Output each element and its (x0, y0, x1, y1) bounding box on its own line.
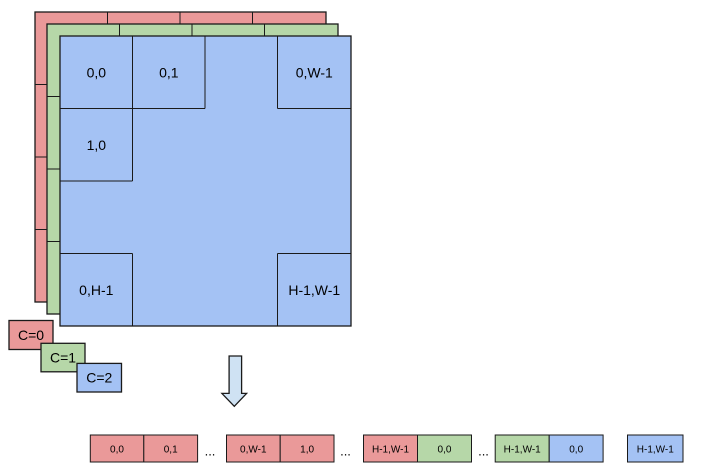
svg-text:0,0: 0,0 (569, 444, 583, 455)
svg-text:1,0: 1,0 (300, 444, 314, 455)
svg-text:0,1: 0,1 (164, 444, 178, 455)
svg-text:1,0: 1,0 (87, 137, 107, 153)
svg-text:H-1,W-1: H-1,W-1 (504, 444, 541, 455)
svg-text:H-1,W-1: H-1,W-1 (372, 444, 409, 455)
svg-text:0,0: 0,0 (87, 64, 107, 80)
svg-text:...: ... (340, 443, 351, 458)
svg-text:H-1,W-1: H-1,W-1 (637, 444, 674, 455)
svg-text:0,H-1: 0,H-1 (79, 282, 113, 298)
svg-text:0,0: 0,0 (110, 444, 124, 455)
svg-text:...: ... (205, 443, 216, 458)
svg-text:0,0: 0,0 (438, 444, 452, 455)
svg-text:0,1: 0,1 (159, 64, 179, 80)
svg-text:0,W-1: 0,W-1 (296, 64, 333, 80)
svg-text:C=0: C=0 (18, 327, 44, 343)
svg-text:C=1: C=1 (50, 350, 76, 366)
svg-text:C=2: C=2 (86, 370, 112, 386)
svg-text:0,W-1: 0,W-1 (240, 444, 267, 455)
svg-text:...: ... (478, 443, 489, 458)
svg-text:H-1,W-1: H-1,W-1 (288, 282, 340, 298)
